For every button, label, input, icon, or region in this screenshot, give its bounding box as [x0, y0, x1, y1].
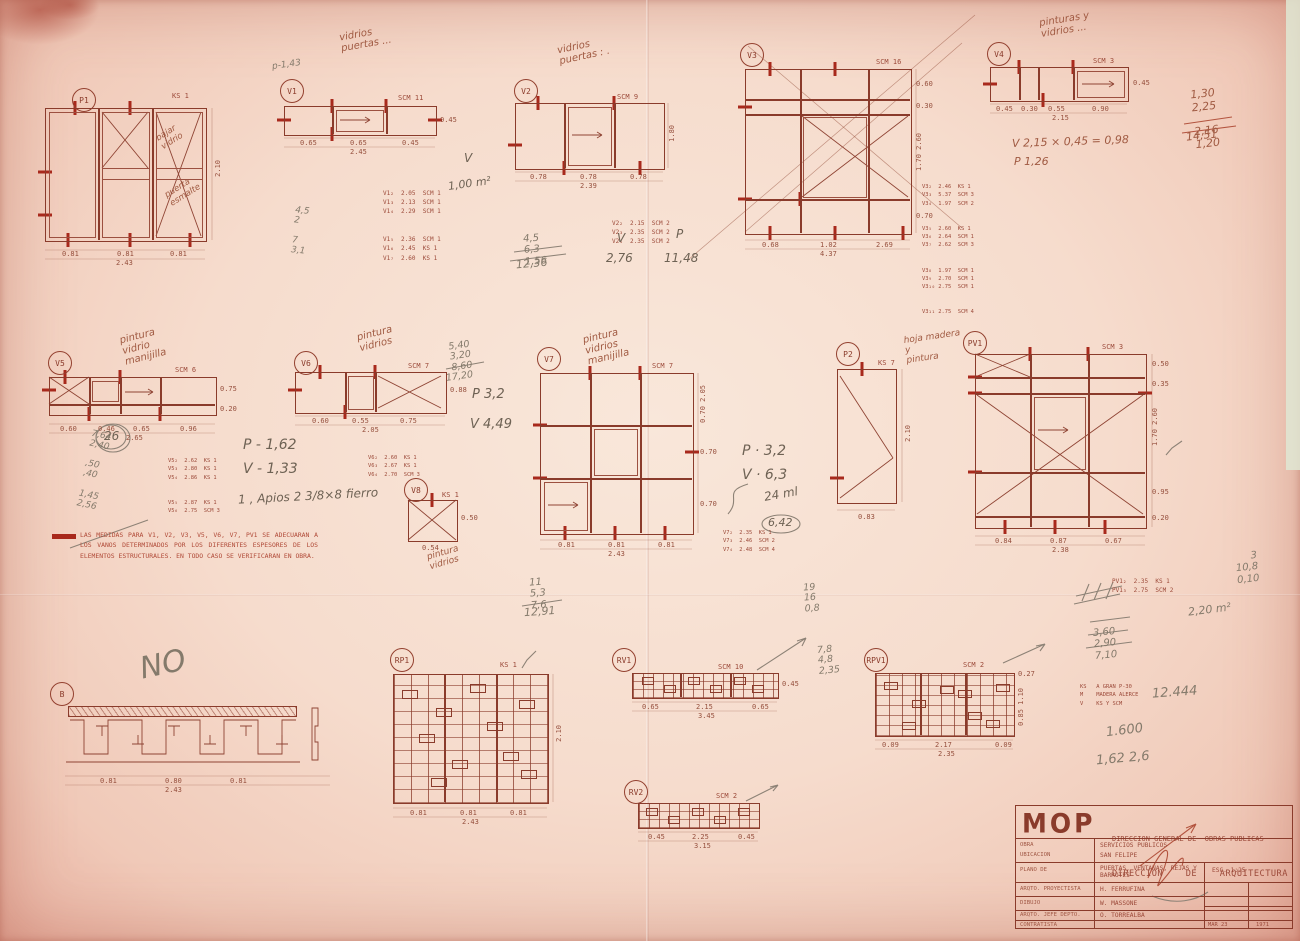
dim-label: 0.45: [738, 833, 755, 841]
dim-label: 0.87: [1050, 537, 1067, 545]
edge-strip: [1286, 0, 1300, 470]
rp1-tag: KS 1: [500, 661, 517, 669]
dim-label: 0.95: [1152, 488, 1169, 496]
handwritten-column: 4,52 73,1: [289, 195, 311, 267]
v1-mullion: [332, 106, 334, 134]
field-jefe-label: ARQTO. JEFE DEPTO.: [1020, 912, 1081, 918]
handwritten-note: pinturas y vidrios ...: [1039, 10, 1092, 40]
dim-label: 0.78: [630, 173, 647, 181]
field-plano-value: PUERTAS, VENTANAS, REJAS Y BARROTES: [1100, 865, 1197, 879]
grille-block: [734, 677, 746, 685]
field-obra-value: SERVICIOS PUBLICOS: [1100, 842, 1167, 849]
figure-label-b: B: [50, 682, 74, 706]
dim-label: 3.15: [694, 842, 711, 850]
blueprint-sheet: P1 KS 1 2.10 0.81 0.81 0.81 2.43 bajar v…: [0, 0, 1300, 941]
field-proyectista-value: H. FERRUFINA: [1100, 886, 1145, 893]
v6-tag: SCM 7: [408, 362, 429, 370]
pv1-transom: [975, 393, 1145, 395]
grille-block: [958, 690, 972, 698]
dim-label: 0.70: [700, 448, 717, 456]
dim-label: 0.45: [782, 680, 799, 688]
dim-label: 0.55: [1048, 105, 1065, 113]
p1-rail: [156, 168, 203, 180]
dim-label: 0.60: [60, 425, 77, 433]
v7-mullion: [640, 373, 642, 533]
field-fecha-mes: MAR 23: [1208, 922, 1227, 928]
dim-label: 0.60: [916, 80, 933, 88]
v1-tag: SCM 11: [398, 94, 423, 102]
dim-label: 0.30: [1021, 105, 1038, 113]
dim-label: 0.88: [450, 386, 467, 394]
dim-label: 2.10: [555, 725, 563, 742]
v2-mullion: [614, 103, 616, 168]
dim-label: 2.43: [165, 786, 182, 794]
figure-label-rp1: RP1: [390, 648, 414, 672]
pv1-transom: [975, 377, 1145, 379]
figure-label-v3: V3: [740, 43, 764, 67]
v7-transom: [540, 478, 692, 480]
v6-mullion: [375, 372, 377, 412]
dim-label: 0.84: [995, 537, 1012, 545]
dim-label: 2.43: [608, 550, 625, 558]
handwritten-column: 7,84,82,35: [816, 633, 842, 688]
handwritten-note: 1 , Apios 2 3/8×8 fierro: [238, 486, 379, 507]
grille-block: [487, 722, 503, 731]
pv1-mullion: [1030, 354, 1032, 527]
figure-label-rpv1: RPV1: [864, 648, 888, 672]
handwritten-column: 310,80,10: [1233, 539, 1261, 597]
handwritten-column: 1,302,25 2,161,20: [1189, 75, 1222, 163]
p1-leaf: [49, 112, 96, 238]
v3-transom: [745, 199, 910, 201]
v3-schedule: V3₂ 2.46 KS 1V3₃ 5.37 SCM 3V3₄ 1.97 SCM …: [922, 166, 974, 334]
pv1-schedule: PV1₂ 2.35 KS 1PV1₃ 2.75 SCM 2: [1112, 558, 1173, 614]
v2-sash: [568, 107, 612, 166]
dim-label: 2.45: [350, 148, 367, 156]
handwritten-note: vidrios puertas : .: [556, 35, 611, 68]
v6-sash: [348, 376, 374, 410]
handwritten-note: V - 1,33: [243, 462, 298, 478]
dim-label: 2.15: [696, 703, 713, 711]
v3-transom: [745, 99, 910, 101]
dim-label: 0.09: [995, 741, 1012, 749]
grille-block: [402, 690, 418, 699]
grille-block: [738, 808, 750, 816]
handwritten-note: V: [617, 232, 625, 245]
dim-label: 4.37: [820, 250, 837, 258]
v7-tag: SCM 7: [652, 362, 673, 370]
dim-label: 0.81: [608, 541, 625, 549]
spec-note: LAS MEDIDAS PARA V1, V2, V3, V5, V6, V7,…: [80, 530, 318, 561]
dim-label: 0.35: [1152, 380, 1169, 388]
handwritten-total: 12,91: [524, 605, 556, 619]
field-ubicacion-value: SAN FELIPE: [1100, 852, 1137, 859]
v7-sash: [544, 482, 588, 531]
dim-label: 2.15: [1052, 114, 1069, 122]
grille-block: [996, 684, 1010, 692]
handwritten-note: 1,00 m²: [447, 175, 491, 193]
p1-mullion: [98, 108, 100, 240]
handwritten-note: pintura vidrios manijilla: [582, 326, 631, 368]
dim-label: 0.65: [642, 703, 659, 711]
fold-line-horizontal: [0, 594, 1300, 596]
v5-rail: [49, 404, 215, 406]
handwritten-note: P 3,2: [472, 388, 505, 403]
v7-sash: [594, 429, 638, 476]
field-contratista-label: CONTRATISTA: [1020, 922, 1057, 928]
circled-number: 6,42: [768, 517, 793, 529]
figure-label-pv1: PV1: [963, 331, 987, 355]
dim-label: 0.65: [752, 703, 769, 711]
rv1-divider: [680, 673, 682, 697]
dim-label: 0.09: [882, 741, 899, 749]
v4-mullion: [1073, 67, 1075, 100]
grille-block: [692, 808, 704, 816]
dim-label: 0.85 1.10: [1017, 688, 1025, 726]
grille-block: [986, 720, 1000, 728]
handwritten-note: pintura vidrio manijilla: [119, 325, 168, 368]
dim-label: 2.65: [126, 434, 143, 442]
grille-block: [436, 708, 452, 717]
grille-block: [470, 684, 486, 693]
handwritten-note: 2,20 m²: [1187, 601, 1231, 618]
figure-label-v2: V2: [514, 79, 538, 103]
dim-label: 0.45: [648, 833, 665, 841]
v3-mullion: [868, 69, 870, 233]
v1-mullion: [386, 106, 388, 134]
dim-label: 0.60: [312, 417, 329, 425]
field-jefe-value: O. TORREALBA: [1100, 912, 1145, 919]
dim-label: 2.38: [1052, 546, 1069, 554]
dim-label: 3.45: [698, 712, 715, 720]
figure-label-v7: V7: [537, 347, 561, 371]
dim-label: 2.69: [876, 241, 893, 249]
dim-label: 0.65: [133, 425, 150, 433]
v4-mullion: [1038, 67, 1040, 100]
pv1-sash: [1034, 397, 1086, 470]
figure-label-rv1: RV1: [612, 648, 636, 672]
dim-label: 0.81: [100, 777, 117, 785]
grille-block: [968, 712, 982, 720]
v8-tag: KS 1: [442, 491, 459, 499]
handwritten-no: NO: [137, 644, 189, 686]
v2-mullion: [564, 103, 566, 168]
field-dibujo-value: W. MASSONE: [1100, 900, 1137, 907]
v7-transom: [540, 425, 692, 427]
dim-label: 0.65: [300, 139, 317, 147]
dim-label: 1.02: [820, 241, 837, 249]
figure-label-p2: P2: [836, 342, 860, 366]
figure-label-v4: V4: [987, 42, 1011, 66]
material-legend: KS A GRAN P-30M MADERA ALERCEV KS Y SCM: [1080, 666, 1138, 725]
grille-block: [503, 752, 519, 761]
grille-block: [884, 682, 898, 690]
dim-label: 2.17: [935, 741, 952, 749]
v5-schedule: V5₂ 2.62 KS 1V5₃ 2.80 KS 1V5₄ 2.86 KS 1 …: [168, 440, 220, 532]
grille-block: [710, 685, 722, 693]
pv1-mullion: [1088, 354, 1090, 527]
v5-tag: SCM 6: [175, 366, 196, 374]
grille-block: [646, 808, 658, 816]
dim-label: 0.20: [1152, 514, 1169, 522]
dim-label: 0.81: [117, 250, 134, 258]
dim-label: 0.78: [530, 173, 547, 181]
dim-label: 2.10: [214, 160, 222, 177]
dim-label: 0.30: [916, 102, 933, 110]
handwritten-note: P: [676, 228, 683, 241]
field-escala: ESC. 1:25: [1212, 867, 1246, 874]
dim-label: 0.75: [220, 385, 237, 393]
dim-label: 0.70: [700, 500, 717, 508]
field-dibujo-label: DIBUJO: [1020, 900, 1040, 906]
p2-frame: [837, 369, 897, 504]
handwritten-note: pintura vidrios: [356, 324, 396, 354]
dim-label: 0.45: [402, 139, 419, 147]
rv2-grille: [638, 803, 760, 829]
handwritten-note: 11,48: [664, 252, 698, 265]
dim-label: 0.70 2.05: [699, 385, 707, 423]
handwritten-column: 3,602,907,10: [1092, 615, 1119, 673]
handwritten-note: 2,76: [606, 252, 633, 265]
v4-mullion: [1019, 67, 1021, 100]
handwritten-note: P 1,26: [1014, 156, 1049, 168]
dim-label: 0.45: [996, 105, 1013, 113]
dim-label: 0.45: [440, 116, 457, 124]
v5-frame: [49, 377, 217, 416]
dim-label: 1.80: [668, 125, 676, 142]
dim-label: 0.81: [410, 809, 427, 817]
v6-mullion: [345, 372, 347, 412]
v5-mullion: [160, 377, 162, 414]
field-fecha-ano: 1971: [1256, 922, 1269, 928]
title-block: MOP DIRECCION GENERAL DE OBRAS PUBLICAS …: [1015, 805, 1293, 929]
rpv1-divider: [965, 673, 967, 735]
mop-logo: MOP: [1022, 808, 1095, 838]
grille-block: [664, 685, 676, 693]
handwritten-note: vidrios puertas ...: [338, 24, 392, 55]
dim-label: 0.81: [460, 809, 477, 817]
handwritten-column: 7,642,40 ,50,40 1,452,56: [74, 419, 115, 522]
dim-label: 0.75: [400, 417, 417, 425]
handwritten-note: V 2,15 × 0,45 = 0,98: [1012, 134, 1129, 150]
v4-sash: [1077, 71, 1125, 98]
handwritten-note: V 4,49: [470, 418, 512, 433]
handwritten-note: 1,62 2,6: [1095, 750, 1150, 769]
dim-label: 0.81: [170, 250, 187, 258]
v5-sash: [92, 381, 119, 402]
pv1-tag: SCM 3: [1102, 343, 1123, 351]
dim-label: 2.25: [692, 833, 709, 841]
grille-block: [521, 770, 537, 779]
note-marker-bar: [52, 534, 76, 539]
grille-block: [431, 778, 447, 787]
dim-label: 0.27: [1018, 670, 1035, 678]
handwritten-note: P - 1,62: [243, 438, 297, 454]
grille-block: [940, 686, 954, 694]
v2-tag: SCM 9: [617, 93, 638, 101]
dim-label: 2.43: [116, 259, 133, 267]
dim-label: 0.81: [658, 541, 675, 549]
rv2-tag: SCM 2: [716, 792, 737, 800]
figure-label-rv2: RV2: [624, 780, 648, 804]
handwritten-note: hoja madera y pintura: [903, 328, 963, 366]
handwritten-note: V · 6,3: [742, 468, 787, 484]
v8-frame: [408, 500, 458, 542]
p1-tag: KS 1: [172, 92, 189, 100]
dim-label: 2.43: [462, 818, 479, 826]
v1-sash: [336, 110, 384, 132]
dim-label: 0.65: [350, 139, 367, 147]
dim-label: 0.83: [858, 513, 875, 521]
dim-label: 0.81: [62, 250, 79, 258]
handwritten-note: 24 ml: [763, 485, 799, 504]
v3-transom: [745, 114, 910, 116]
handwritten-note: P · 3,2: [742, 444, 786, 460]
p1-mullion: [152, 108, 154, 240]
dim-label: 0.80: [165, 777, 182, 785]
field-obra-label: OBRA: [1020, 842, 1033, 848]
grille-block: [642, 677, 654, 685]
rp1-divider: [496, 674, 498, 802]
grille-block: [688, 677, 700, 685]
v3-mullion: [800, 69, 802, 233]
dim-label: 2.05: [362, 426, 379, 434]
handwritten-note: p-1,43: [271, 58, 301, 72]
dim-label: 2.39: [580, 182, 597, 190]
dim-label: 0.50: [461, 514, 478, 522]
pv1-transom: [975, 516, 1145, 518]
dim-label: 0.68: [762, 241, 779, 249]
handwritten-note: V: [464, 152, 472, 165]
dim-label: 1.70 2.60: [1151, 408, 1159, 446]
dim-label: 0.78: [580, 173, 597, 181]
dim-label: 0.20: [220, 405, 237, 413]
dim-label: 0.45: [1133, 79, 1150, 87]
rpv1-tag: SCM 2: [963, 661, 984, 669]
grille-block: [452, 760, 468, 769]
figure-label-v8: V8: [404, 478, 428, 502]
grille-block: [668, 816, 680, 824]
figure-label-v1: V1: [280, 79, 304, 103]
grille-block: [752, 685, 764, 693]
figure-label-v5: V5: [48, 351, 72, 375]
dim-label: 0.81: [510, 809, 527, 817]
p2-tag: KS 7: [878, 359, 895, 367]
handwritten-total: 17,20: [445, 370, 473, 384]
b-hatched-board: [68, 706, 297, 717]
v3-tag: SCM 16: [876, 58, 901, 66]
dim-label: 0.90: [1092, 105, 1109, 113]
grille-block: [519, 700, 535, 709]
pv1-transom: [975, 472, 1145, 474]
v7-mullion: [590, 373, 592, 533]
dim-label: 0.50: [1152, 360, 1169, 368]
dim-label: 0.81: [558, 541, 575, 549]
corner-smudge: [40, 0, 100, 20]
field-proyectista-label: ARQTO. PROYECTISTA: [1020, 886, 1081, 892]
handwritten-column: 19160,8: [802, 572, 821, 626]
grille-block: [912, 700, 926, 708]
grille-block: [902, 722, 916, 730]
v3-sash: [803, 117, 867, 198]
grille-block: [419, 734, 435, 743]
dim-label: 2.35: [938, 750, 955, 758]
rv1-divider: [730, 673, 732, 697]
dim-label: 0.67: [1105, 537, 1122, 545]
v1-schedule: V1₂ 2.05 SCM 1V1₃ 2.13 SCM 1V1₄ 2.29 SCM…: [383, 170, 441, 282]
handwritten-note: 1.600: [1105, 722, 1144, 741]
v5-mullion: [120, 377, 122, 414]
rv1-tag: SCM 10: [718, 663, 743, 671]
v5-mullion: [89, 377, 91, 414]
dim-label: 0.96: [180, 425, 197, 433]
v4-tag: SCM 3: [1093, 57, 1114, 65]
dim-label: 2.10: [904, 425, 912, 442]
field-plano-label: PLANO DE: [1020, 867, 1047, 873]
p1-rail: [102, 168, 150, 180]
corner-smudge: [0, 0, 100, 45]
handwritten-note: 12.444: [1152, 684, 1198, 702]
dim-label: 0.81: [230, 777, 247, 785]
grille-block: [714, 816, 726, 824]
dim-label: 0.55: [352, 417, 369, 425]
field-ubicacion-label: UBICACION: [1020, 852, 1050, 858]
